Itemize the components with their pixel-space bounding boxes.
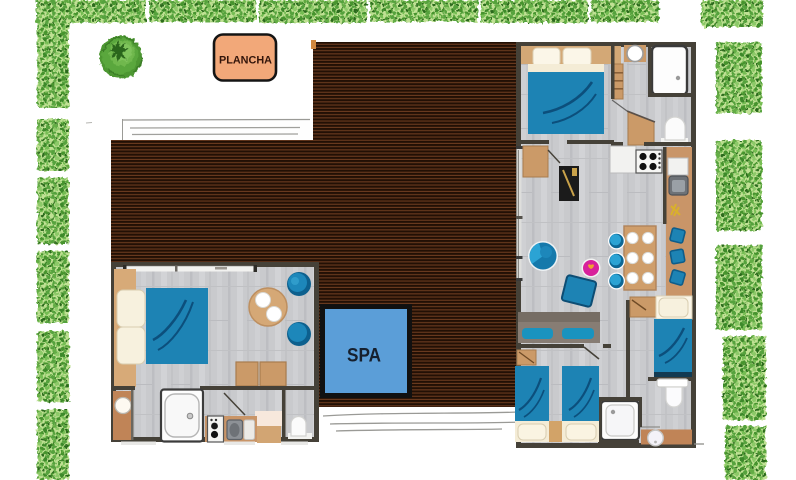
svg-text:PLANCHA: PLANCHA	[219, 55, 272, 67]
svg-text:SPA: SPA	[347, 346, 381, 367]
